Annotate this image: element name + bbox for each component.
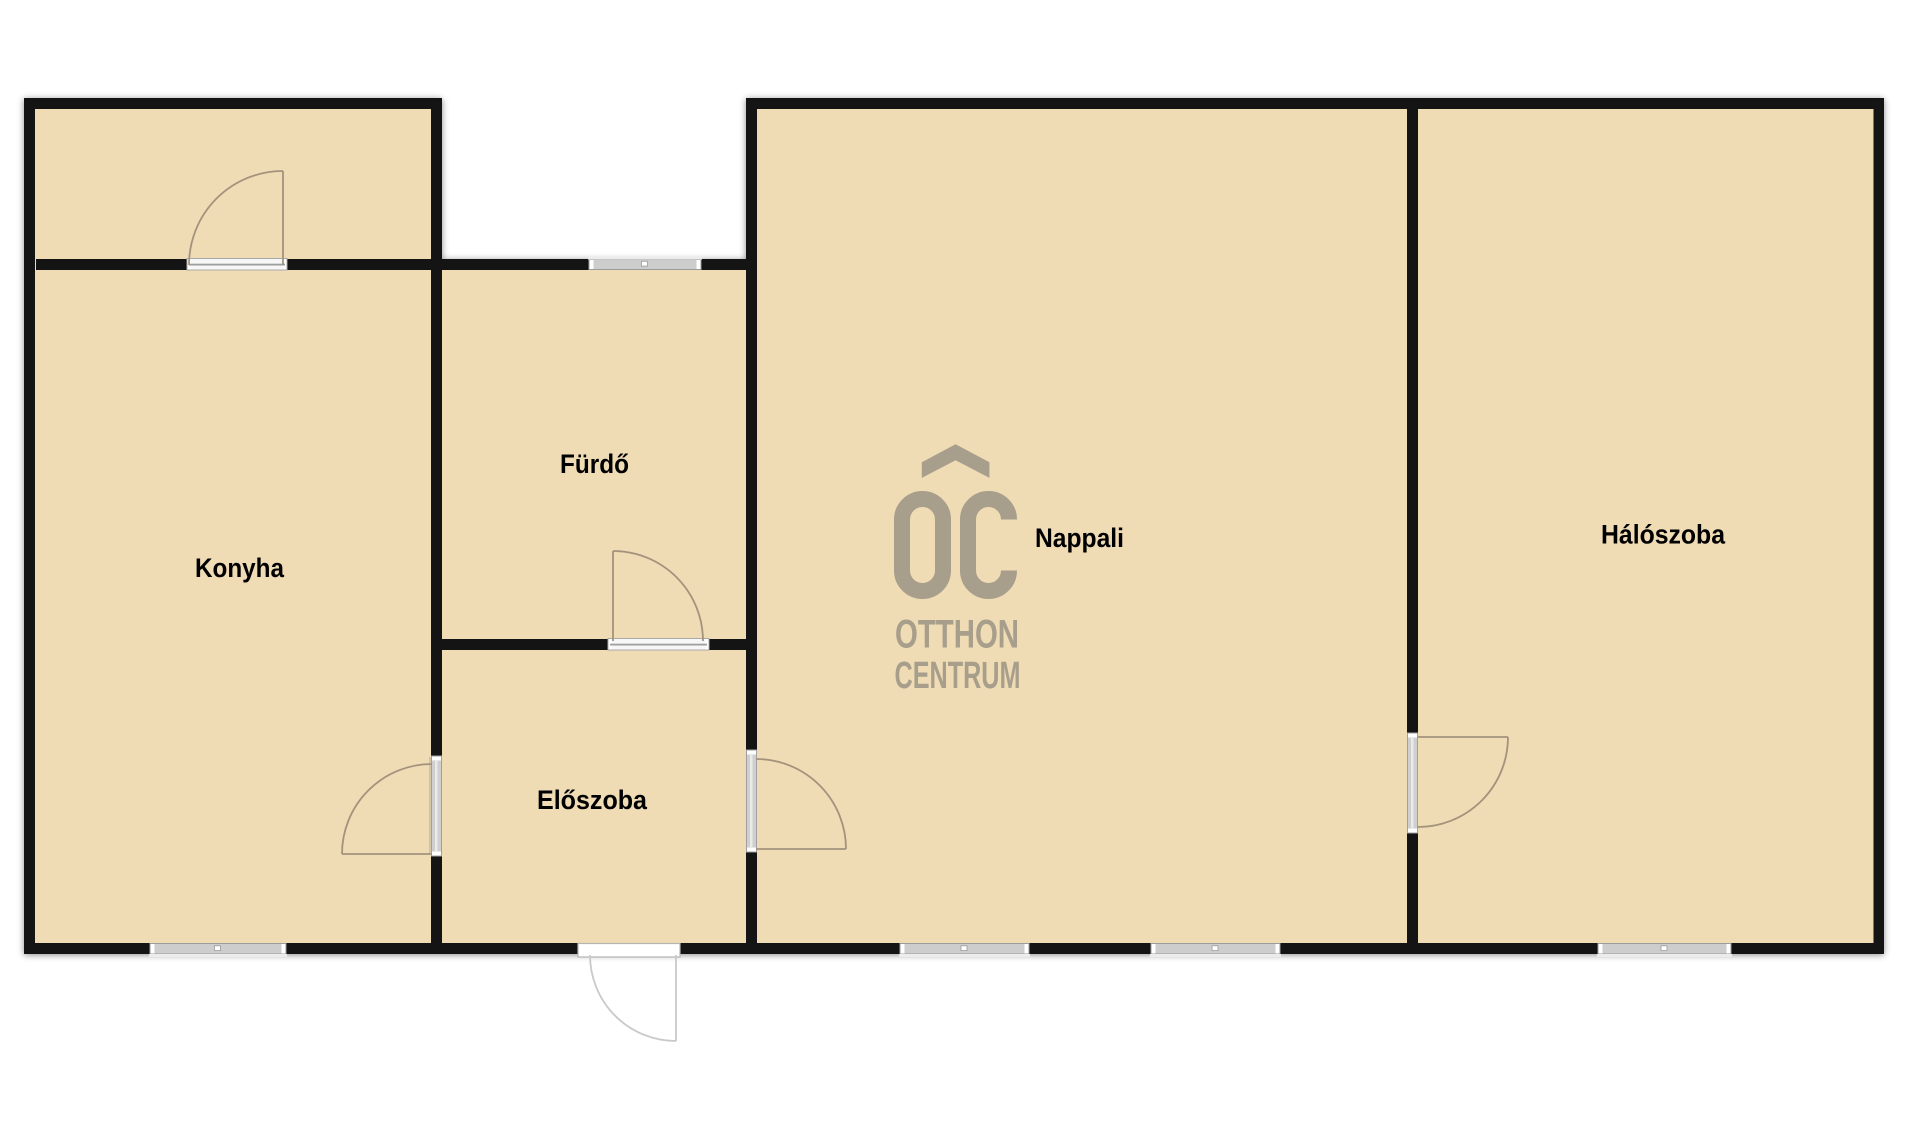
svg-text:CENTRUM: CENTRUM — [895, 655, 1021, 697]
svg-text:Konyha: Konyha — [195, 553, 285, 583]
svg-text:Fürdő: Fürdő — [560, 449, 629, 479]
svg-text:Nappali: Nappali — [1035, 523, 1124, 553]
svg-text:Előszoba: Előszoba — [537, 785, 648, 815]
svg-text:Hálószoba: Hálószoba — [1601, 520, 1726, 550]
svg-text:OTTHON: OTTHON — [895, 613, 1019, 657]
